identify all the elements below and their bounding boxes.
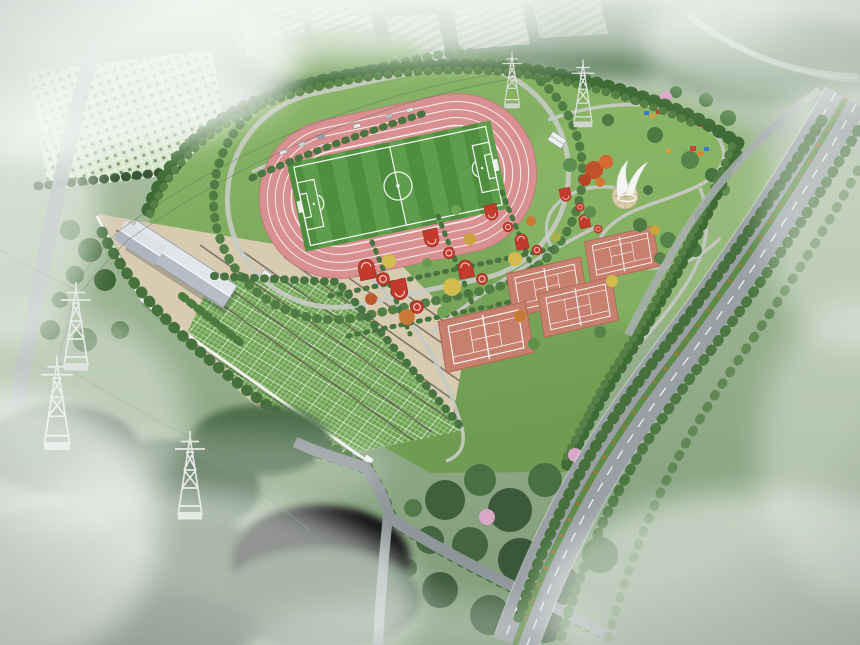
aerial-rendering bbox=[0, 0, 860, 645]
vignette bbox=[0, 0, 860, 645]
rendering-canvas bbox=[0, 0, 860, 645]
